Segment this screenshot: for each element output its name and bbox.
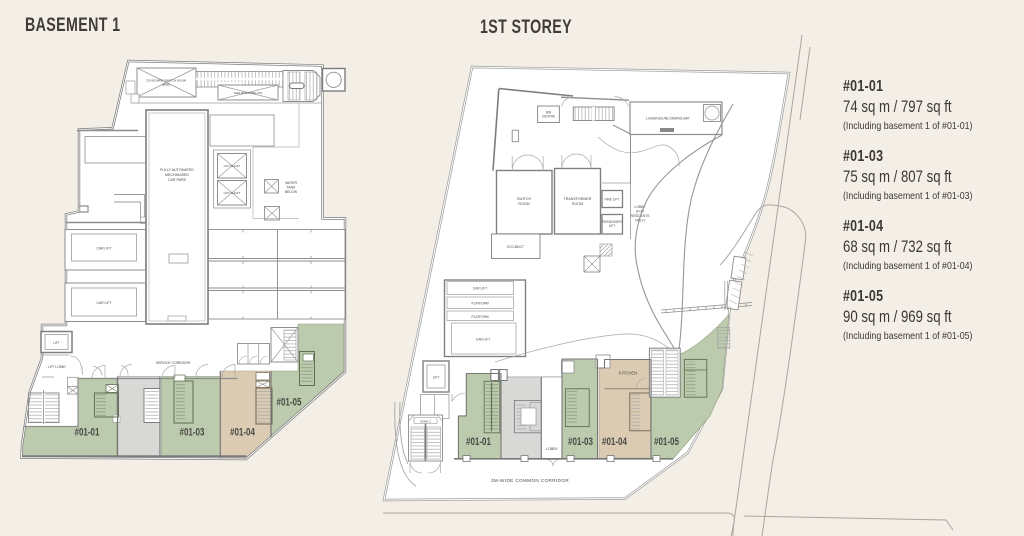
svg-text:TRANSFORMER: TRANSFORMER: [564, 197, 592, 201]
svg-text:TANK: TANK: [287, 185, 297, 189]
svg-text:LIFT SHAFT: LIFT SHAFT: [224, 191, 241, 195]
svg-text:CAR PARK: CAR PARK: [168, 178, 187, 182]
svg-text:ECC/MDCT: ECC/MDCT: [507, 245, 524, 249]
svg-text:MECHANISED: MECHANISED: [165, 173, 189, 177]
svg-text:LIFT: LIFT: [53, 341, 60, 345]
svg-text:(M&E): (M&E): [162, 83, 171, 87]
svg-text:#01-05: #01-05: [276, 396, 302, 409]
svg-text:LOBBY: LOBBY: [546, 447, 559, 451]
svg-text:#01-01: #01-01: [74, 426, 100, 439]
svg-text:LIFT LOBBY: LIFT LOBBY: [48, 365, 67, 369]
svg-text:LIFT: LIFT: [433, 376, 440, 380]
svg-text:CAR LIFT: CAR LIFT: [96, 247, 111, 251]
svg-text:KITCHEN: KITCHEN: [619, 371, 637, 376]
svg-text:BELOW: BELOW: [285, 190, 298, 194]
svg-text:ROOM: ROOM: [572, 202, 583, 206]
svg-text:PLATFORM: PLATFORM: [471, 302, 488, 306]
svg-text:#01-03: #01-03: [568, 436, 593, 449]
svg-text:LIFT SHAFT: LIFT SHAFT: [224, 164, 241, 168]
svg-text:FULLY AUTOMATED: FULLY AUTOMATED: [160, 168, 194, 172]
svg-text:#01-03: #01-03: [179, 426, 204, 439]
svg-text:STAIR 1: STAIR 1: [420, 420, 431, 424]
svg-text:SWITCH: SWITCH: [517, 197, 532, 201]
svg-text:ROOM: ROOM: [518, 202, 529, 206]
svg-text:M&E ROOM BELOW: M&E ROOM BELOW: [234, 91, 263, 95]
svg-text:#01-04: #01-04: [230, 426, 256, 439]
svg-text:LIFT: LIFT: [609, 224, 616, 228]
svg-text:ONLY): ONLY): [635, 219, 645, 223]
svg-text:#01-05: #01-05: [654, 436, 680, 449]
svg-text:CAR LIFT: CAR LIFT: [96, 301, 111, 305]
svg-text:#01-04: #01-04: [602, 436, 628, 449]
svg-text:WATER: WATER: [285, 181, 297, 185]
svg-text:(FOR: (FOR: [636, 210, 645, 214]
svg-text:SERVICE CORRIDOR: SERVICE CORRIDOR: [156, 361, 191, 365]
svg-text:CAR LIFT: CAR LIFT: [476, 338, 490, 342]
svg-text:CENTRE: CENTRE: [542, 115, 555, 119]
svg-text:3M-WIDE COMMON CORRIDOR: 3M-WIDE COMMON CORRIDOR: [491, 478, 569, 483]
svg-text:#01-01: #01-01: [466, 436, 492, 449]
svg-text:FIRE LIFT: FIRE LIFT: [605, 198, 620, 202]
svg-text:CAR LIFT: CAR LIFT: [473, 287, 487, 291]
svg-text:LOADING/UNLOADING BAY: LOADING/UNLOADING BAY: [646, 117, 691, 121]
svg-text:PLATFORM: PLATFORM: [471, 315, 488, 319]
